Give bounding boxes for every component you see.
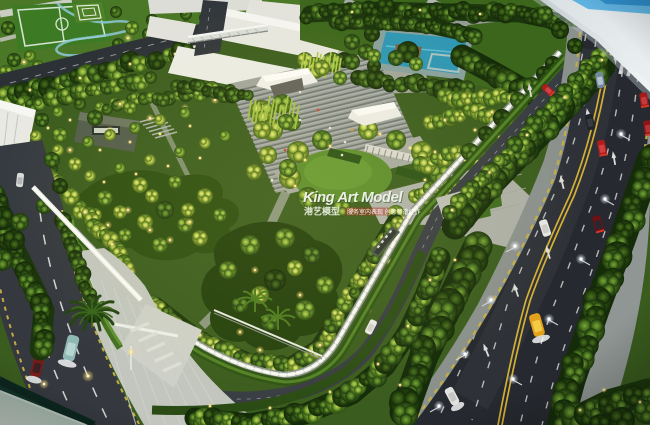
svg-text:King Art Model: King Art Model bbox=[303, 189, 403, 206]
svg-text:港艺模型: 港艺模型 bbox=[304, 206, 340, 217]
svg-text:服务室内表现 创意智造佳作: 服务室内表现 创意智造佳作 bbox=[347, 208, 421, 216]
